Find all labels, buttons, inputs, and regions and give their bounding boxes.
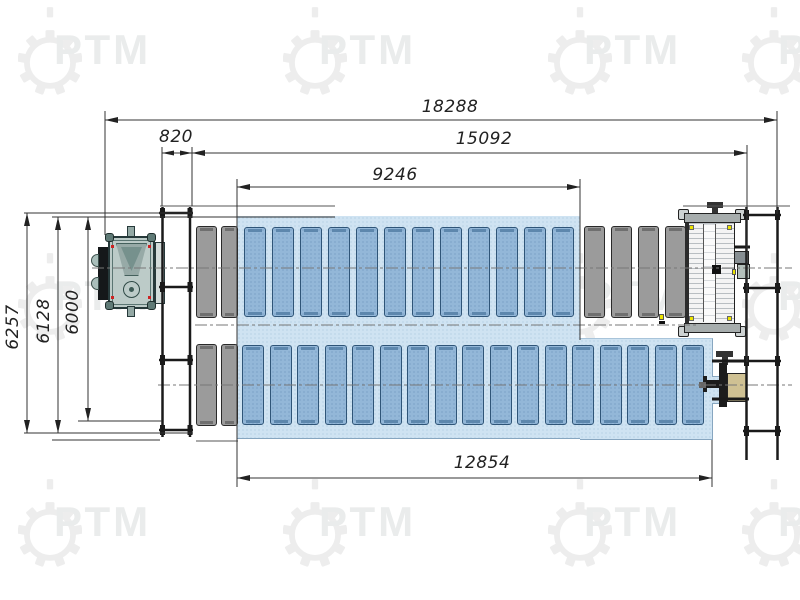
dim-total-length-label: 18288: [422, 97, 479, 117]
right-transfer-rails: [743, 207, 781, 460]
dim-bottom-row-length-label: 12854: [454, 453, 511, 473]
dim-overall-width-label: 6257: [3, 304, 23, 349]
left-transfer-rails: [159, 207, 193, 437]
dim-infeed-offset-label: 820: [159, 127, 193, 147]
dim-top-row-length-label: 9246: [372, 165, 417, 185]
engineering-drawing: РТМ РТМ РТМ: [0, 0, 800, 600]
center-lines: [92, 268, 792, 385]
dim-line-length-label: 15092: [456, 129, 513, 149]
connector-bars: [712, 247, 750, 399]
dim-mid-width-label: 6128: [34, 298, 54, 343]
right-rail-ticks: [744, 210, 780, 436]
frame-lines: [160, 206, 790, 441]
left-rail-ticks: [160, 208, 193, 435]
dim-inner-width-label: 6000: [63, 289, 83, 334]
linework-overlay: [0, 0, 800, 600]
